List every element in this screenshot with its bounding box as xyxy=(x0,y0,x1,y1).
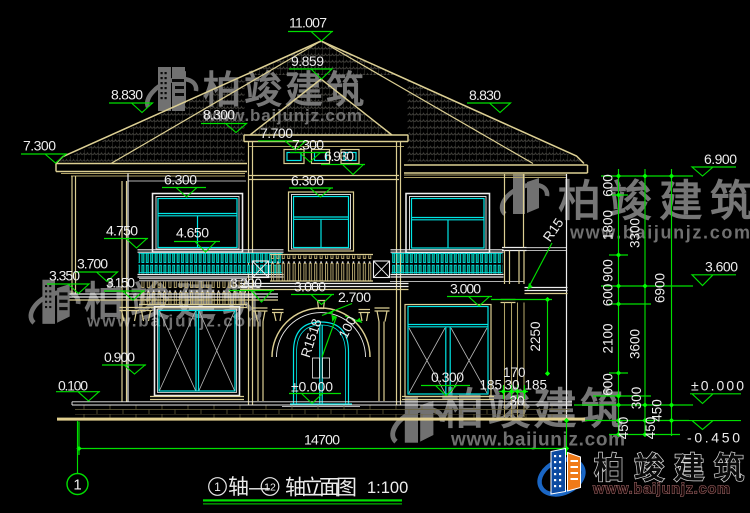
svg-text:2250: 2250 xyxy=(528,321,543,351)
svg-text:30: 30 xyxy=(505,378,520,393)
svg-text:8.830: 8.830 xyxy=(111,87,143,103)
svg-text:0.300: 0.300 xyxy=(431,369,464,385)
svg-text:0.100: 0.100 xyxy=(58,378,88,394)
svg-text:轴立面图: 轴立面图 xyxy=(285,477,357,500)
svg-text:3.600: 3.600 xyxy=(705,259,738,275)
svg-text:6.300: 6.300 xyxy=(164,172,197,188)
svg-text:1:100: 1:100 xyxy=(367,479,408,497)
svg-text:4.650: 4.650 xyxy=(176,225,209,241)
svg-text:3300: 3300 xyxy=(628,218,643,248)
svg-text:8.300: 8.300 xyxy=(203,107,235,123)
svg-text:1: 1 xyxy=(73,477,81,494)
svg-text:2.700: 2.700 xyxy=(338,289,371,305)
svg-text:600: 600 xyxy=(601,284,616,307)
svg-text:8.830: 8.830 xyxy=(469,87,501,103)
svg-text:6.900: 6.900 xyxy=(704,151,737,167)
svg-text:2100: 2100 xyxy=(601,323,616,353)
svg-text:3.350: 3.350 xyxy=(49,268,80,284)
svg-text:±0.000: ±0.000 xyxy=(291,379,333,395)
svg-text:4.750: 4.750 xyxy=(106,223,138,239)
svg-text:0.900: 0.900 xyxy=(104,349,135,365)
svg-text:12: 12 xyxy=(264,482,276,494)
svg-text:11.007: 11.007 xyxy=(289,15,327,31)
svg-text:7.300: 7.300 xyxy=(292,137,324,153)
svg-text:7.700: 7.700 xyxy=(260,125,293,141)
svg-text:www.baijunjz.com: www.baijunjz.com xyxy=(450,430,625,451)
svg-text:3.150: 3.150 xyxy=(106,275,135,291)
svg-text:185: 185 xyxy=(480,378,503,393)
svg-text:14700: 14700 xyxy=(304,432,340,448)
svg-text:3600: 3600 xyxy=(628,329,643,359)
svg-text:9.859: 9.859 xyxy=(291,53,324,69)
svg-text:450: 450 xyxy=(643,417,658,440)
svg-text:7.300: 7.300 xyxy=(23,138,56,154)
svg-text:-0.450: -0.450 xyxy=(687,430,740,446)
svg-text:www.baijunjz.com: www.baijunjz.com xyxy=(592,482,730,498)
svg-text:3.000: 3.000 xyxy=(294,279,326,295)
svg-text:6900: 6900 xyxy=(653,273,668,303)
svg-text:3.000: 3.000 xyxy=(450,281,481,297)
svg-text:600: 600 xyxy=(601,373,616,396)
svg-text:6.930: 6.930 xyxy=(324,148,354,164)
svg-text:3.200: 3.200 xyxy=(230,275,262,291)
svg-text:900: 900 xyxy=(601,259,616,282)
svg-text:450: 450 xyxy=(616,417,631,440)
svg-text:185: 185 xyxy=(525,378,548,393)
svg-text:1800: 1800 xyxy=(601,210,616,240)
svg-text:3.700: 3.700 xyxy=(77,256,108,272)
svg-text:30: 30 xyxy=(510,394,525,409)
svg-text:1: 1 xyxy=(214,480,221,494)
svg-text:300: 300 xyxy=(629,387,644,410)
svg-text:600: 600 xyxy=(601,174,616,197)
svg-text:6.300: 6.300 xyxy=(291,173,324,189)
